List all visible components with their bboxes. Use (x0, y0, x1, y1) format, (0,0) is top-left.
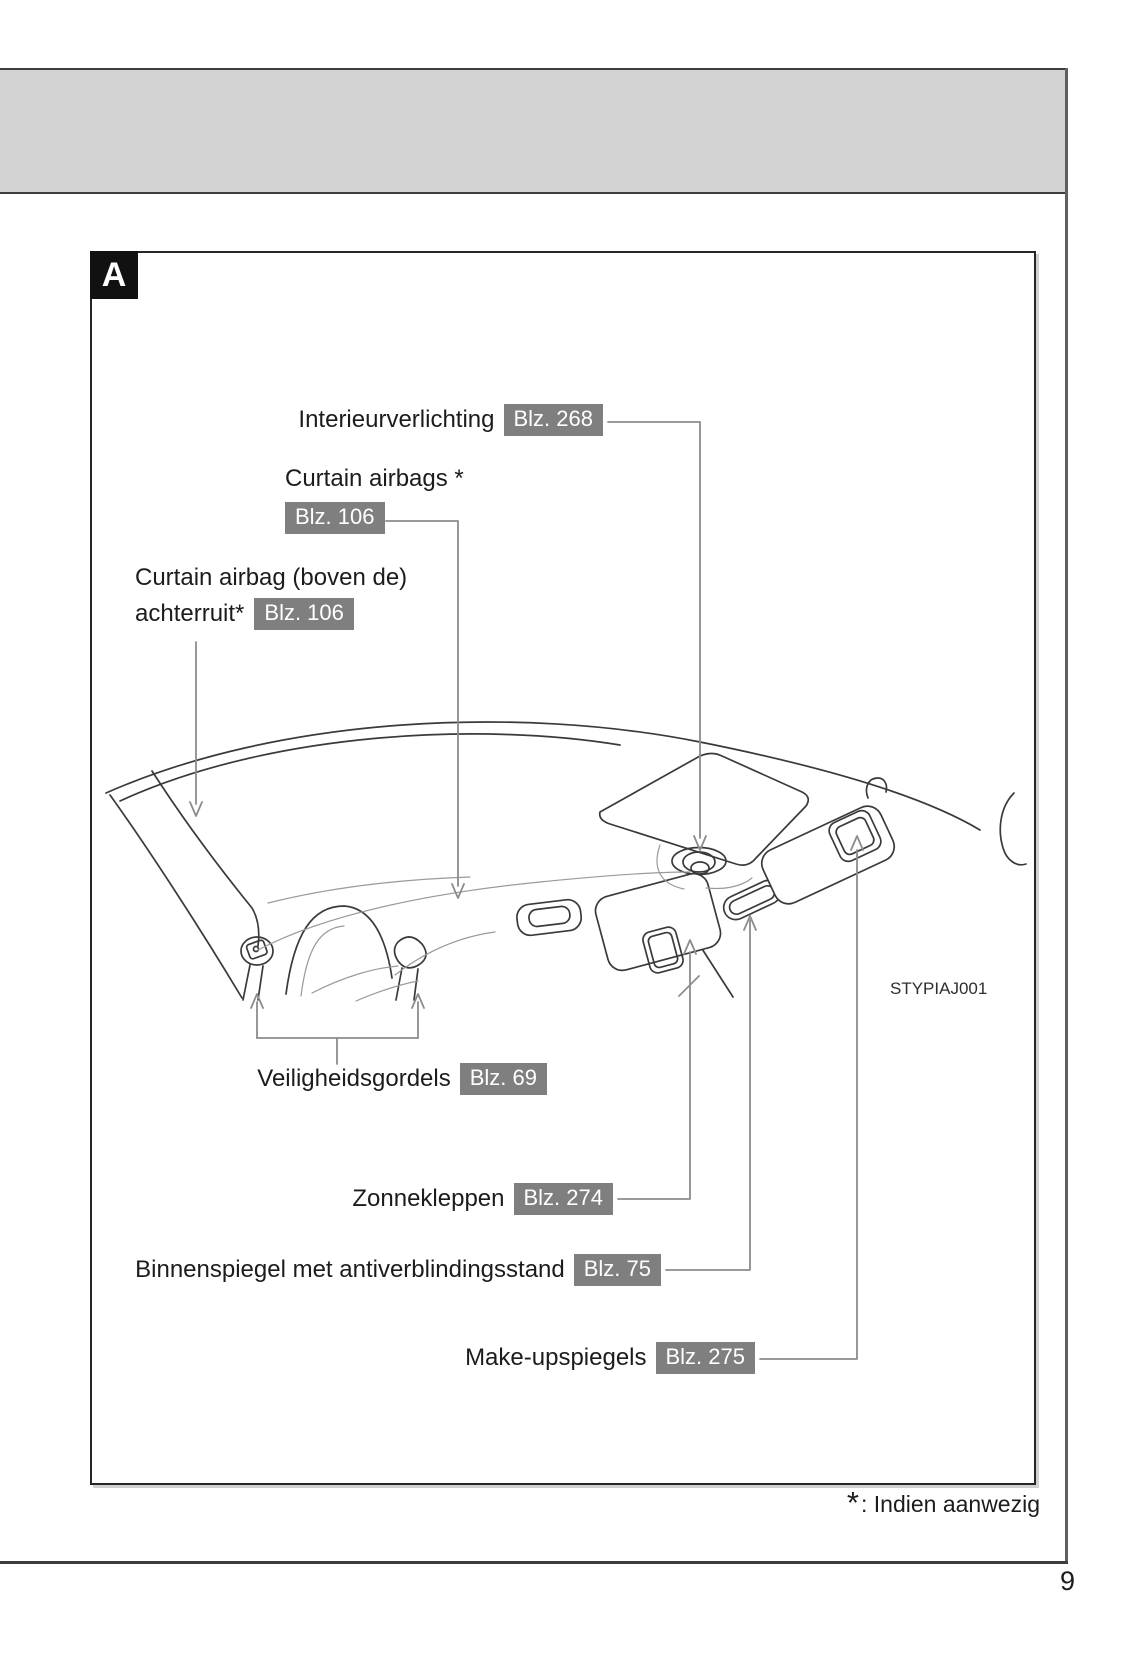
page-badge: Blz. 106 (254, 598, 354, 630)
callout-label: Curtain airbags * (285, 464, 464, 494)
callout-inner-mirror: Binnenspiegel met antiverblindingsstand … (135, 1254, 661, 1286)
page-border-rule (1065, 68, 1068, 1564)
callout-vanity-mirrors: Make-upspiegels Blz. 275 (465, 1342, 755, 1374)
callout-curtain-airbags: Curtain airbags * Blz. 106 (285, 464, 464, 534)
page-badge: Blz. 274 (514, 1183, 614, 1215)
page-badge: Blz. 106 (285, 502, 385, 534)
callout-label: Veiligheidsgordels (257, 1064, 450, 1094)
asterisk-symbol: * (847, 1490, 859, 1516)
callout-label: Make-upspiegels (465, 1343, 646, 1373)
footnote: * : Indien aanwezig (847, 1490, 1040, 1518)
page-number: 9 (1060, 1566, 1075, 1597)
chapter-header-band (0, 68, 1068, 194)
page-badge: Blz. 275 (656, 1342, 756, 1374)
callout-label: Zonnekleppen (352, 1184, 504, 1214)
callout-label-line2: achterruit* (135, 599, 244, 629)
callout-interior-light: Interieurverlichting Blz. 268 (298, 404, 603, 436)
page-badge: Blz. 268 (504, 404, 604, 436)
callout-label-line1: Curtain airbag (boven de) (135, 563, 407, 593)
callout-label: Interieurverlichting (298, 405, 494, 435)
footnote-text: : Indien aanwezig (861, 1490, 1040, 1518)
section-tab: A (90, 251, 138, 299)
callout-label: Binnenspiegel met antiverblindingsstand (135, 1255, 565, 1285)
callout-seat-belts: Veiligheidsgordels Blz. 69 (257, 1063, 547, 1095)
figure-code: STYPIAJ001 (890, 979, 987, 999)
callout-curtain-airbag-rear: Curtain airbag (boven de) achterruit* Bl… (135, 563, 407, 630)
figure-frame (90, 251, 1036, 1485)
callout-sun-visors: Zonnekleppen Blz. 274 (352, 1183, 613, 1215)
page-badge: Blz. 75 (574, 1254, 661, 1286)
footer-rule (0, 1561, 1068, 1564)
page-badge: Blz. 69 (460, 1063, 547, 1095)
manual-page: A (0, 0, 1142, 1654)
